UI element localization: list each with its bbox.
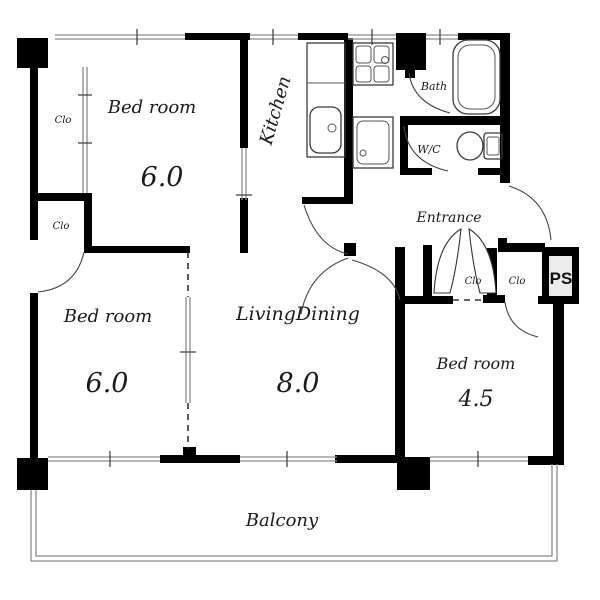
door-arc-bath: [409, 73, 450, 113]
walls: [17, 33, 579, 490]
door-arc-entrance: [509, 186, 551, 240]
room-size-bedroom-nw: 6.0: [141, 162, 184, 193]
door-arc-living-right: [352, 260, 400, 300]
room-label-bath: Bath: [420, 80, 447, 93]
floor-plan: Bed room 6.0 Kitchen Bath W/C Entrance C…: [0, 0, 600, 600]
kitchen-sink-fixture: [307, 43, 345, 157]
room-size-bedroom-e: 4.5: [458, 387, 494, 412]
room-label-closet-hall-right: Clo: [509, 276, 526, 287]
toilet-fixture: [457, 132, 502, 160]
door-arc-kitchen: [304, 205, 348, 254]
door-arc-bedroom-e: [505, 302, 538, 337]
room-label-bedroom-w: Bed room: [63, 306, 152, 327]
bathtub-fixture: [453, 40, 500, 114]
room-label-closet-nw-upper: Clo: [55, 115, 72, 126]
room-label-bedroom-e: Bed room: [436, 354, 516, 373]
washer-pan-fixture: [353, 117, 393, 168]
room-label-closet-hall-left: Clo: [465, 276, 482, 287]
room-label-balcony: Balcony: [245, 510, 319, 531]
room-label-living-dining: LivingDining: [235, 303, 360, 325]
pipe-shaft-block: [396, 33, 426, 70]
room-label-pipe-space: PS: [550, 269, 573, 288]
pillar-bottom-middle: [397, 457, 430, 490]
room-size-bedroom-w: 6.0: [86, 368, 129, 399]
pillar-top-left: [17, 38, 48, 68]
pillar-bottom-left: [17, 458, 48, 490]
room-label-bedroom-nw: Bed room: [107, 97, 196, 118]
room-label-closet-nw-lower: Clo: [53, 221, 70, 232]
room-label-entrance: Entrance: [415, 210, 481, 226]
room-label-wc: W/C: [417, 143, 441, 156]
stove-fixture: [353, 43, 393, 85]
room-size-living-dining: 8.0: [277, 368, 320, 399]
bifold-door-left: [434, 229, 461, 293]
floor-plan-drawing: Bed room 6.0 Kitchen Bath W/C Entrance C…: [0, 0, 600, 600]
door-arc-bedroom-w: [38, 252, 84, 292]
room-label-kitchen: Kitchen: [256, 74, 296, 148]
